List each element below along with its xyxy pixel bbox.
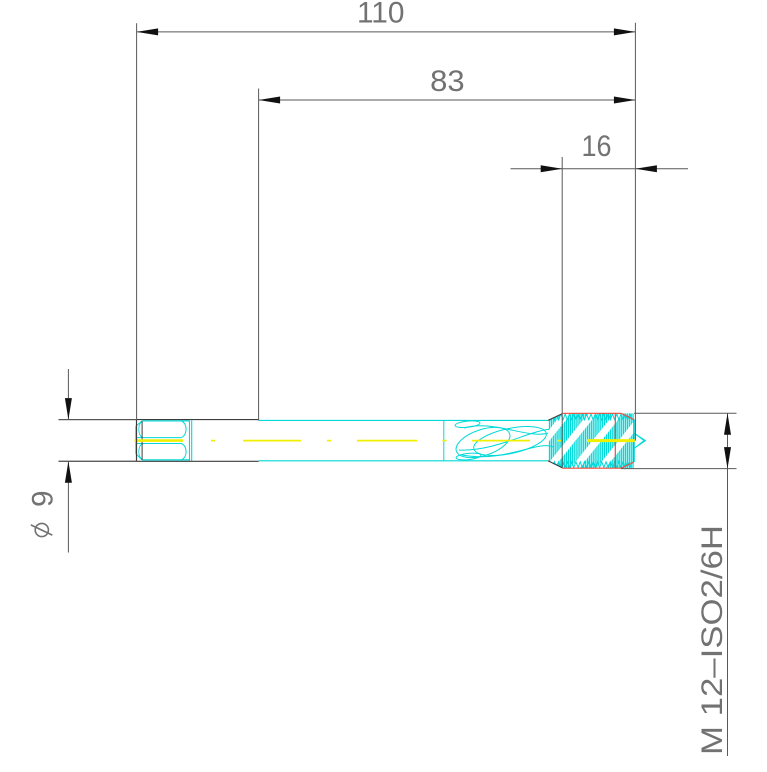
svg-text:83: 83: [430, 65, 465, 98]
svg-text:9: 9: [27, 490, 60, 507]
svg-text:16: 16: [582, 130, 612, 163]
svg-text:M 12–ISO2/6H: M 12–ISO2/6H: [696, 525, 729, 755]
svg-text:110: 110: [357, 0, 405, 30]
